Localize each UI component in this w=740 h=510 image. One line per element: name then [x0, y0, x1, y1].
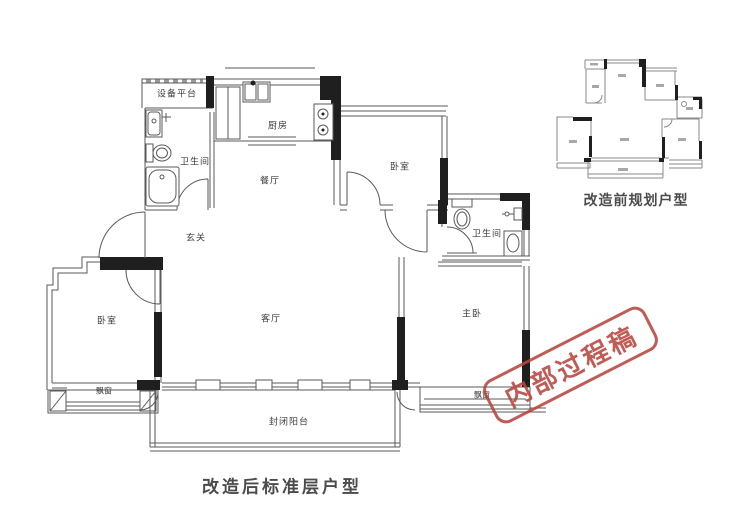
- room-label-enclosed-balcony: 封闭阳台: [269, 415, 309, 428]
- room-label-living-room: 客厅: [261, 312, 281, 325]
- floor-plan-drawing: [0, 0, 740, 510]
- floor-plan-page: 设备平台 卫生间 厨房 餐厅 卧室 玄关 卫生间 卧室 客厅 主卧 飘窗 飘窗 …: [0, 0, 740, 510]
- room-label-bathroom-left: 卫生间: [180, 155, 210, 168]
- room-label-kitchen: 厨房: [268, 119, 288, 132]
- mini-floor-plan: [557, 59, 702, 178]
- balcony-mullion: [256, 380, 272, 390]
- left-bathroom-toilet: [146, 144, 171, 162]
- right-bathroom-toilet: [452, 199, 472, 229]
- room-label-foyer: 玄关: [186, 231, 206, 244]
- room-label-bathroom-right: 卫生间: [472, 227, 502, 240]
- room-label-master-bedroom: 主卧: [462, 307, 482, 320]
- mini-plan-caption: 改造前规划户型: [584, 190, 689, 210]
- room-label-equipment-platform: 设备平台: [157, 87, 197, 100]
- main-floor-plan: [47, 68, 546, 451]
- room-label-bedroom-top: 卧室: [390, 160, 410, 173]
- balcony-mullion: [196, 380, 220, 390]
- bathtub: [146, 167, 179, 206]
- room-label-bay-window-left: 飘窗: [96, 386, 112, 397]
- balcony-mullion: [350, 380, 370, 390]
- right-bathroom-sink: [502, 208, 522, 256]
- kitchen-sink: [243, 81, 270, 103]
- room-label-dining-room: 餐厅: [260, 174, 280, 187]
- room-label-bedroom-left: 卧室: [97, 314, 117, 327]
- main-plan-caption: 改造后标准层户型: [202, 473, 362, 498]
- balcony-mullion: [298, 380, 322, 390]
- kitchen-stove: [314, 104, 333, 140]
- left-bathroom-sink: [146, 110, 171, 137]
